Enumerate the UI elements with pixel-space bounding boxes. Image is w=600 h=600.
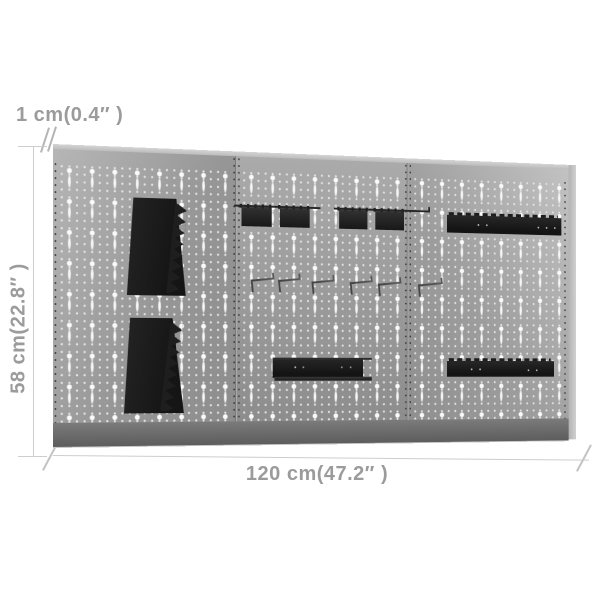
shelf-rivets (471, 368, 473, 370)
panel-seam-left (233, 156, 239, 422)
height-dimension-cap-top (18, 146, 47, 147)
width-dimension-label: 120 cm(47.2″ ) (217, 463, 417, 486)
product-dimension-diagram: 1 cm(0.4″ ) 58 cm(22.8″ ) 120 cm(47.2″ ) (0, 0, 600, 600)
tool-shelf-bottom-right (447, 361, 554, 377)
pegboard-panel-right (408, 163, 569, 443)
tool-bracket-2 (280, 208, 310, 228)
pegboard-bottom-rail (53, 418, 569, 448)
height-dimension-label: 58 cm(22.8″ ) (8, 234, 31, 424)
panel-seam-right (404, 163, 410, 421)
tool-shelf-top-right (447, 215, 561, 236)
width-tick-right-icon (576, 444, 591, 471)
shelf-rivets (294, 366, 296, 368)
tool-bracket-4 (375, 211, 404, 231)
height-dimension-cap-bottom (18, 456, 47, 457)
edge-hole-column-left (54, 161, 57, 423)
tool-shelf-center-bottom (273, 358, 363, 378)
thickness-dimension-label: 1 cm(0.4″ ) (16, 104, 123, 127)
width-dimension-line (53, 455, 589, 461)
shelf-rivets (478, 224, 480, 226)
tool-bracket-3 (339, 210, 367, 230)
pegboard-panel-center (236, 156, 408, 445)
pegboard-right-edge (569, 165, 576, 440)
pegboard (53, 149, 576, 448)
pegboard-hole-pattern (412, 175, 565, 420)
tool-bracket-1 (242, 207, 272, 227)
edge-hole-column-right (564, 180, 566, 418)
height-dimension-line (33, 147, 34, 457)
